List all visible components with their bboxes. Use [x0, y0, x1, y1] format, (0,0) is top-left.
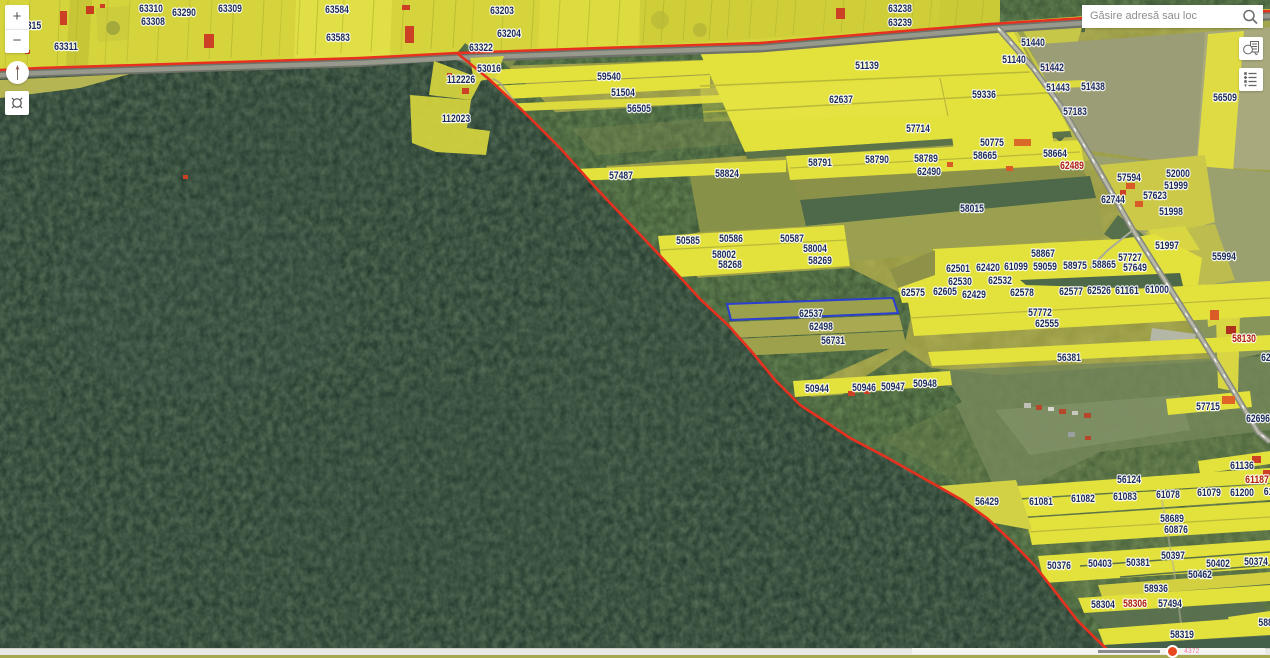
- svg-text:58936: 58936: [1144, 583, 1168, 595]
- svg-text:62537: 62537: [799, 308, 823, 320]
- svg-text:63311: 63311: [54, 41, 78, 53]
- svg-text:112226: 112226: [447, 74, 475, 86]
- svg-text:62578: 62578: [1010, 287, 1034, 299]
- svg-text:58790: 58790: [865, 154, 889, 166]
- svg-text:63204: 63204: [497, 28, 521, 40]
- svg-text:62637: 62637: [829, 94, 853, 106]
- svg-text:56731: 56731: [821, 335, 845, 347]
- svg-text:50946: 50946: [852, 382, 876, 394]
- svg-text:62555: 62555: [1035, 318, 1059, 330]
- svg-text:51440: 51440: [1021, 37, 1045, 49]
- svg-text:50587: 50587: [780, 233, 804, 245]
- svg-text:61099: 61099: [1004, 261, 1028, 273]
- svg-text:59540: 59540: [597, 71, 621, 83]
- svg-text:61078: 61078: [1156, 489, 1180, 501]
- svg-text:63238: 63238: [888, 3, 912, 15]
- svg-text:63203: 63203: [490, 5, 514, 17]
- svg-text:60876: 60876: [1164, 524, 1188, 536]
- svg-text:56509: 56509: [1213, 92, 1237, 104]
- svg-text:56505: 56505: [627, 103, 651, 115]
- svg-text:62501: 62501: [946, 263, 970, 275]
- svg-text:56429: 56429: [975, 496, 999, 508]
- svg-text:51999: 51999: [1164, 180, 1188, 192]
- svg-text:58015: 58015: [960, 203, 984, 215]
- svg-text:51140: 51140: [1002, 54, 1026, 66]
- svg-text:51997: 51997: [1155, 240, 1179, 252]
- svg-text:63583: 63583: [326, 32, 350, 44]
- svg-text:58304: 58304: [1091, 599, 1115, 611]
- svg-text:63290: 63290: [172, 7, 196, 19]
- svg-text:57623: 57623: [1143, 190, 1167, 202]
- svg-text:50586: 50586: [719, 233, 743, 245]
- svg-text:50944: 50944: [805, 383, 829, 395]
- svg-text:61000: 61000: [1145, 284, 1169, 296]
- svg-text:5883: 5883: [1258, 617, 1270, 629]
- svg-text:58268: 58268: [718, 259, 742, 271]
- svg-text:62498: 62498: [809, 321, 833, 333]
- svg-text:62575: 62575: [901, 287, 925, 299]
- svg-text:56124: 56124: [1117, 474, 1141, 486]
- svg-text:58319: 58319: [1170, 629, 1194, 641]
- svg-text:63310: 63310: [139, 3, 163, 15]
- svg-text:58004: 58004: [803, 243, 827, 255]
- svg-text:51504: 51504: [611, 87, 635, 99]
- svg-text:612: 612: [1264, 486, 1270, 498]
- svg-text:62429: 62429: [962, 289, 986, 301]
- svg-text:51443: 51443: [1046, 82, 1070, 94]
- svg-text:59336: 59336: [972, 89, 996, 101]
- svg-text:51438: 51438: [1081, 81, 1105, 93]
- svg-text:61079: 61079: [1197, 487, 1221, 499]
- svg-text:53016: 53016: [477, 63, 501, 75]
- svg-text:58130: 58130: [1232, 333, 1256, 345]
- svg-text:58824: 58824: [715, 168, 739, 180]
- svg-text:63239: 63239: [888, 17, 912, 29]
- svg-text:58975: 58975: [1063, 260, 1087, 272]
- svg-text:58306: 58306: [1123, 598, 1147, 610]
- svg-text:62605: 62605: [933, 286, 957, 298]
- svg-text:112023: 112023: [442, 113, 470, 125]
- svg-text:58865: 58865: [1092, 259, 1116, 271]
- svg-text:57494: 57494: [1158, 598, 1182, 610]
- svg-text:57649: 57649: [1123, 262, 1147, 274]
- svg-text:62577: 62577: [1059, 286, 1083, 298]
- svg-text:63322: 63322: [469, 42, 493, 54]
- svg-text:62489: 62489: [1060, 160, 1084, 172]
- svg-text:61082: 61082: [1071, 493, 1095, 505]
- svg-text:50403: 50403: [1088, 558, 1112, 570]
- svg-text:62532: 62532: [988, 275, 1012, 287]
- svg-text:50376: 50376: [1047, 560, 1071, 572]
- svg-text:58664: 58664: [1043, 148, 1067, 160]
- svg-text:59059: 59059: [1033, 261, 1057, 273]
- svg-text:58789: 58789: [914, 153, 938, 165]
- svg-text:63309: 63309: [218, 3, 242, 15]
- svg-text:50948: 50948: [913, 378, 937, 390]
- svg-text:61136: 61136: [1230, 460, 1254, 472]
- svg-text:58791: 58791: [808, 157, 832, 169]
- svg-text:51442: 51442: [1040, 62, 1064, 74]
- svg-text:62746: 62746: [1261, 352, 1270, 364]
- svg-text:57183: 57183: [1063, 106, 1087, 118]
- svg-text:61083: 61083: [1113, 491, 1137, 503]
- svg-text:62420: 62420: [976, 262, 1000, 274]
- svg-text:57594: 57594: [1117, 172, 1141, 184]
- svg-text:61200: 61200: [1230, 487, 1254, 499]
- svg-text:62696: 62696: [1246, 413, 1270, 425]
- svg-text:58867: 58867: [1031, 248, 1055, 260]
- svg-text:57715: 57715: [1196, 401, 1220, 413]
- svg-text:55994: 55994: [1212, 251, 1236, 263]
- svg-text:52000: 52000: [1166, 168, 1190, 180]
- svg-text:61081: 61081: [1029, 496, 1053, 508]
- svg-text:50374: 50374: [1244, 556, 1268, 568]
- svg-text:61161: 61161: [1115, 285, 1139, 297]
- svg-text:62490: 62490: [917, 166, 941, 178]
- svg-text:50397: 50397: [1161, 550, 1185, 562]
- svg-text:61187: 61187: [1245, 474, 1269, 486]
- svg-text:50381: 50381: [1126, 557, 1150, 569]
- svg-text:63308: 63308: [141, 16, 165, 28]
- svg-text:57714: 57714: [906, 123, 930, 135]
- svg-text:51998: 51998: [1159, 206, 1183, 218]
- svg-text:58269: 58269: [808, 255, 832, 267]
- svg-text:57487: 57487: [609, 170, 633, 182]
- svg-text:50585: 50585: [676, 235, 700, 247]
- svg-text:50947: 50947: [881, 381, 905, 393]
- svg-text:63584: 63584: [325, 4, 349, 16]
- svg-text:56381: 56381: [1057, 352, 1081, 364]
- svg-text:50462: 50462: [1188, 569, 1212, 581]
- svg-text:62744: 62744: [1101, 194, 1125, 206]
- svg-text:58665: 58665: [973, 150, 997, 162]
- svg-text:51139: 51139: [855, 60, 879, 72]
- svg-text:50775: 50775: [980, 137, 1004, 149]
- svg-text:62526: 62526: [1087, 285, 1111, 297]
